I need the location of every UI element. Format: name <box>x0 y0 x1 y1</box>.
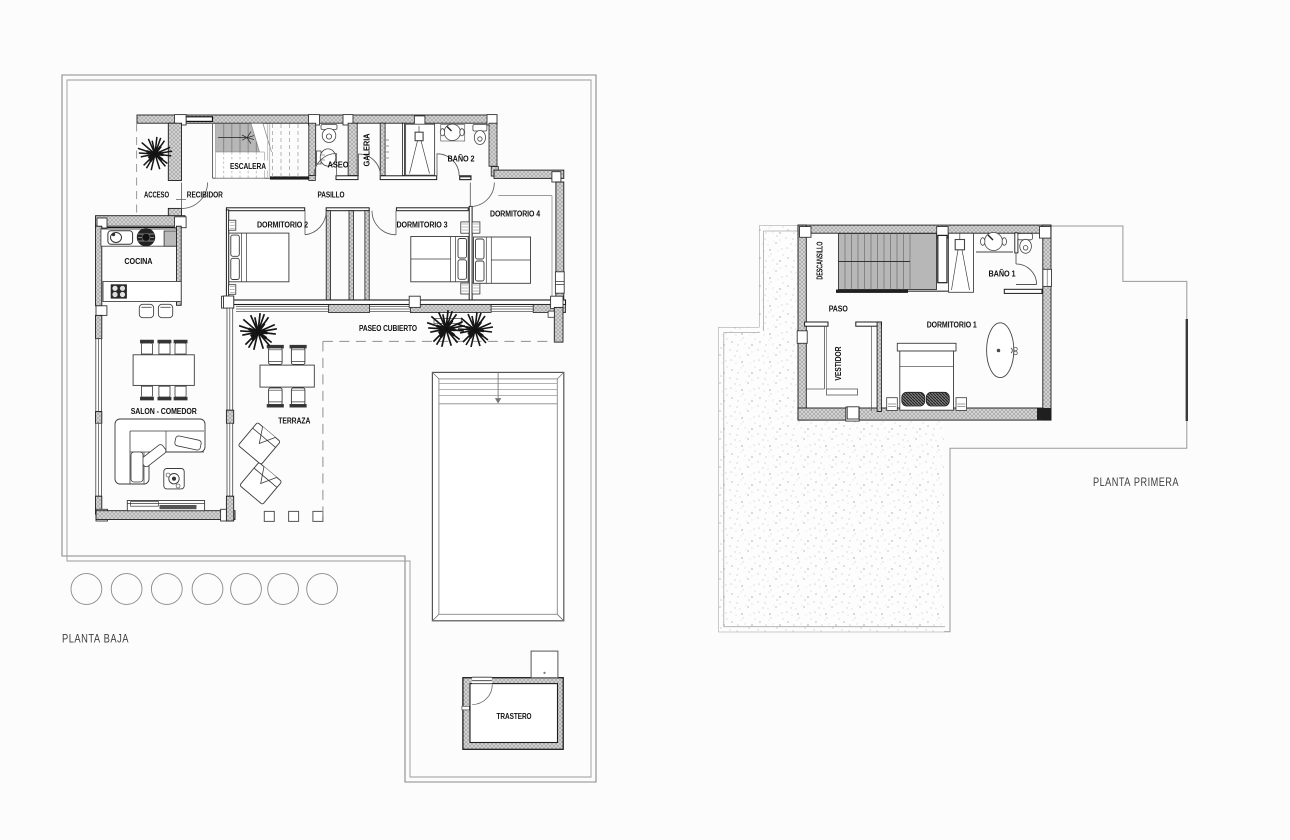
svg-text:RECIBIDOR: RECIBIDOR <box>187 190 224 200</box>
svg-text:ACCESO: ACCESO <box>144 190 169 200</box>
svg-text:PASO: PASO <box>829 303 848 313</box>
svg-text:TRASTERO: TRASTERO <box>497 711 532 721</box>
svg-text:DESCANSILLO: DESCANSILLO <box>815 241 825 279</box>
svg-text:DORMITORIO 2: DORMITORIO 2 <box>257 220 308 230</box>
svg-text:ESCALERA: ESCALERA <box>230 161 266 171</box>
svg-text:SALON - COMEDOR: SALON - COMEDOR <box>131 406 198 416</box>
svg-text:PLANTA PRIMERA: PLANTA PRIMERA <box>1093 477 1179 489</box>
svg-text:ASEO: ASEO <box>328 160 349 170</box>
svg-text:DORMITORIO 1: DORMITORIO 1 <box>927 319 977 329</box>
svg-text:PASEO CUBIERTO: PASEO CUBIERTO <box>359 323 417 333</box>
svg-text:BAÑO 2: BAÑO 2 <box>448 154 475 164</box>
svg-text:BAÑO 1: BAÑO 1 <box>989 269 1016 279</box>
svg-text:PLANTA BAJA: PLANTA BAJA <box>62 634 129 646</box>
svg-text:DORMITORIO 3: DORMITORIO 3 <box>397 220 448 230</box>
svg-text:PASILLO: PASILLO <box>318 190 345 200</box>
svg-text:DORMITORIO 4: DORMITORIO 4 <box>490 208 540 218</box>
svg-text:COCINA: COCINA <box>124 256 152 266</box>
svg-text:GALERIA: GALERIA <box>362 134 372 167</box>
svg-text:VESTIDOR: VESTIDOR <box>833 346 843 381</box>
svg-text:TERRAZA: TERRAZA <box>278 416 310 426</box>
